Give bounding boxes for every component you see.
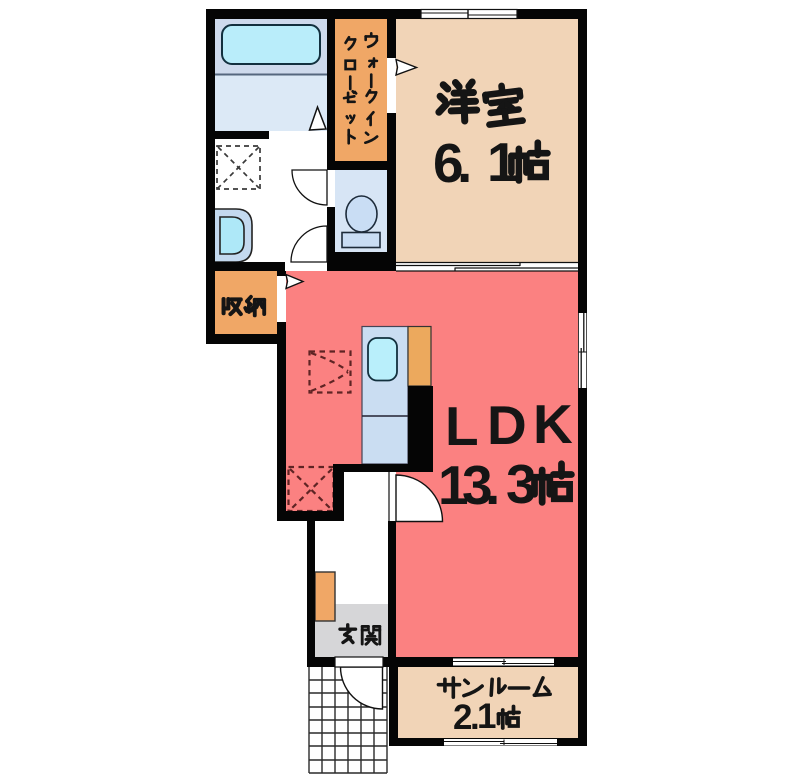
svg-text:.: . xyxy=(457,132,472,194)
svg-text:.: . xyxy=(485,454,500,516)
svg-text:D: D xyxy=(487,394,527,456)
svg-text:1: 1 xyxy=(477,697,496,736)
svg-text:L: L xyxy=(445,395,479,457)
svg-text:K: K xyxy=(533,393,573,455)
